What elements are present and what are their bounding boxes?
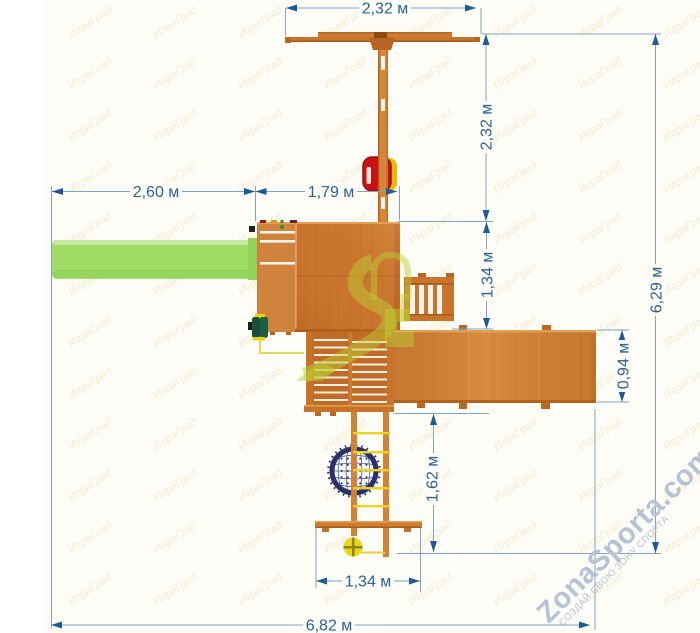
- svg-text:1,34 м: 1,34 м: [480, 252, 497, 299]
- svg-text:1,34 м: 1,34 м: [345, 574, 392, 591]
- svg-text:2,60 м: 2,60 м: [133, 184, 180, 201]
- svg-text:6,29 м: 6,29 м: [649, 267, 666, 314]
- svg-text:1,79 м: 1,79 м: [308, 184, 355, 201]
- svg-text:0,94 м: 0,94 м: [616, 343, 633, 390]
- svg-text:2,32 м: 2,32 м: [479, 104, 496, 151]
- svg-text:6,82 м: 6,82 м: [306, 618, 353, 633]
- svg-text:1,62 м: 1,62 м: [425, 456, 442, 503]
- svg-text:2,32 м: 2,32 м: [362, 1, 409, 18]
